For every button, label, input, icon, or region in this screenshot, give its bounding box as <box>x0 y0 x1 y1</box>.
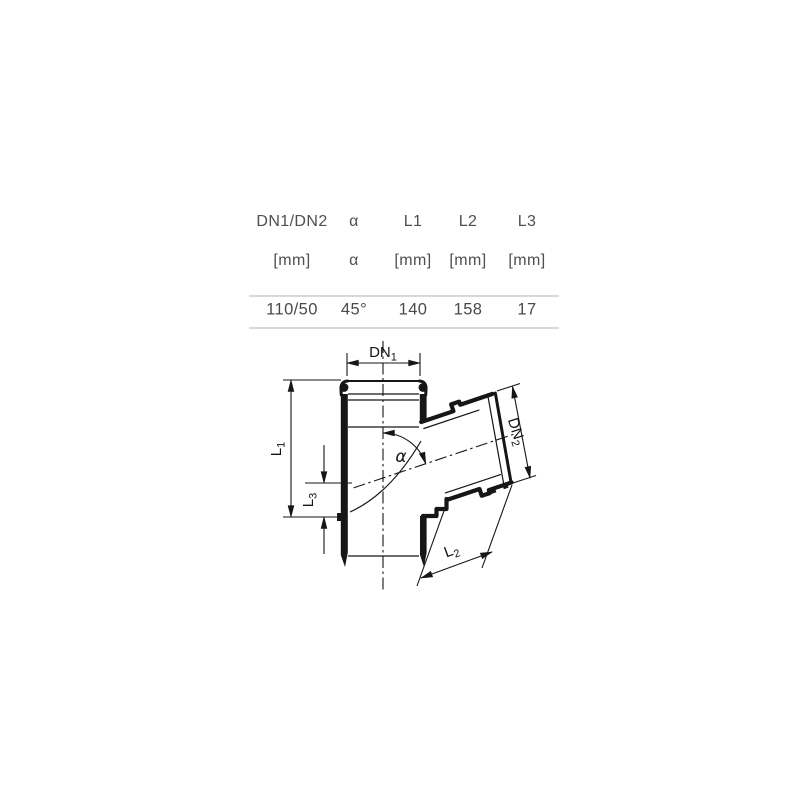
dimension-alpha: α <box>383 433 426 467</box>
dimension-l2: L2 <box>417 485 512 586</box>
dimension-l1: L1 <box>268 380 345 517</box>
fitting-technical-drawing: DN1 L1 L3 α DN2 L2 <box>0 0 800 800</box>
alpha-label: α <box>395 447 406 467</box>
branch-centerline <box>354 433 517 488</box>
dn1-label: DN1 <box>369 344 397 364</box>
l3-label: L3 <box>300 493 320 507</box>
left-wall <box>341 394 348 567</box>
l2-label: L2 <box>442 540 462 563</box>
right-wall <box>420 516 427 567</box>
saddle-curve <box>350 441 421 512</box>
main-pipe <box>337 381 447 567</box>
l1-label: L1 <box>268 442 288 456</box>
